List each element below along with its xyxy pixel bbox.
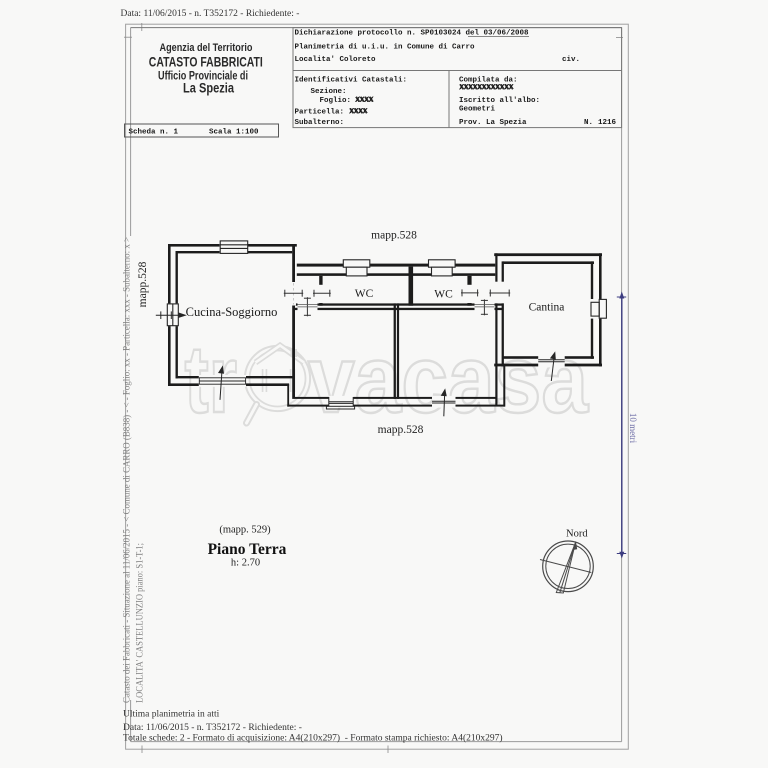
svg-text:civ.: civ. (562, 56, 580, 64)
svg-text:Particella:: Particella: (295, 109, 349, 117)
svg-text:mapp.528: mapp.528 (137, 261, 149, 307)
svg-text:Scala 1:100: Scala 1:100 (209, 129, 259, 137)
svg-text:Planimetria di u.i.u. in Comun: Planimetria di u.i.u. in Comune di Carro (295, 44, 476, 52)
svg-text:Subalterno:: Subalterno: (295, 119, 345, 127)
svg-text:CATASTO FABBRICATI: CATASTO FABBRICATI (149, 54, 263, 70)
svg-text:Localita' Coloreto: Localita' Coloreto (295, 56, 377, 64)
svg-text:XXXXXXXXXXXX: XXXXXXXXXXXX (460, 84, 515, 92)
svg-text:La Spezia: La Spezia (183, 80, 234, 96)
svg-text:mapp.528: mapp.528 (371, 230, 417, 242)
svg-text:Data: 11/06/2015 - n. T352172: Data: 11/06/2015 - n. T352172 - Richiede… (123, 723, 302, 733)
svg-text:N.: N. (584, 119, 593, 127)
svg-text:XXXX: XXXX (350, 108, 369, 116)
svg-text:Foglio:: Foglio: (320, 97, 356, 105)
svg-text:Iscritto all'albo:: Iscritto all'albo: (459, 97, 540, 105)
svg-text:1216: 1216 (598, 119, 617, 127)
svg-text:Scheda n. 1: Scheda n. 1 (129, 129, 179, 137)
svg-text:Cantina: Cantina (529, 302, 565, 314)
svg-text:Agenzia del Territorio: Agenzia del Territorio (160, 42, 253, 54)
svg-text:vacasa: vacasa (308, 326, 589, 433)
svg-text:Prov. La Spezia: Prov. La Spezia (459, 119, 527, 127)
svg-text:mapp.528: mapp.528 (378, 424, 424, 436)
svg-text:10 metri: 10 metri (628, 413, 638, 444)
svg-text:WC: WC (434, 289, 453, 301)
svg-text:XXXX: XXXX (356, 97, 375, 105)
svg-text:Piano Terra: Piano Terra (208, 541, 287, 558)
svg-text:Totale schede: 2 - Formato di: Totale schede: 2 - Formato di acquisizio… (123, 732, 503, 743)
svg-text:LOCALITA' CASTELLUNZIO piano:: LOCALITA' CASTELLUNZIO piano: S1-T-1; (135, 543, 145, 703)
svg-text:Nord: Nord (566, 529, 588, 540)
svg-text:WC: WC (355, 288, 374, 300)
svg-text:Ultima planimetria in atti: Ultima planimetria in atti (123, 710, 220, 720)
svg-text:Data: 11/06/2015 - n. T352172: Data: 11/06/2015 - n. T352172 - Richiede… (121, 9, 300, 19)
svg-text:Identificativi Catastali:: Identificativi Catastali: (295, 77, 408, 85)
svg-text:Cucina-Soggiorno: Cucina-Soggiorno (186, 305, 278, 319)
svg-text:Sezione:: Sezione: (311, 88, 347, 96)
svg-text:Catasto dei Fabbricati - Situa: Catasto dei Fabbricati - Situazione al 1… (122, 237, 132, 703)
svg-text:(mapp. 529): (mapp. 529) (219, 525, 271, 536)
svg-text:Geometri: Geometri (459, 106, 496, 114)
svg-text:h: 2.70: h: 2.70 (231, 558, 260, 569)
